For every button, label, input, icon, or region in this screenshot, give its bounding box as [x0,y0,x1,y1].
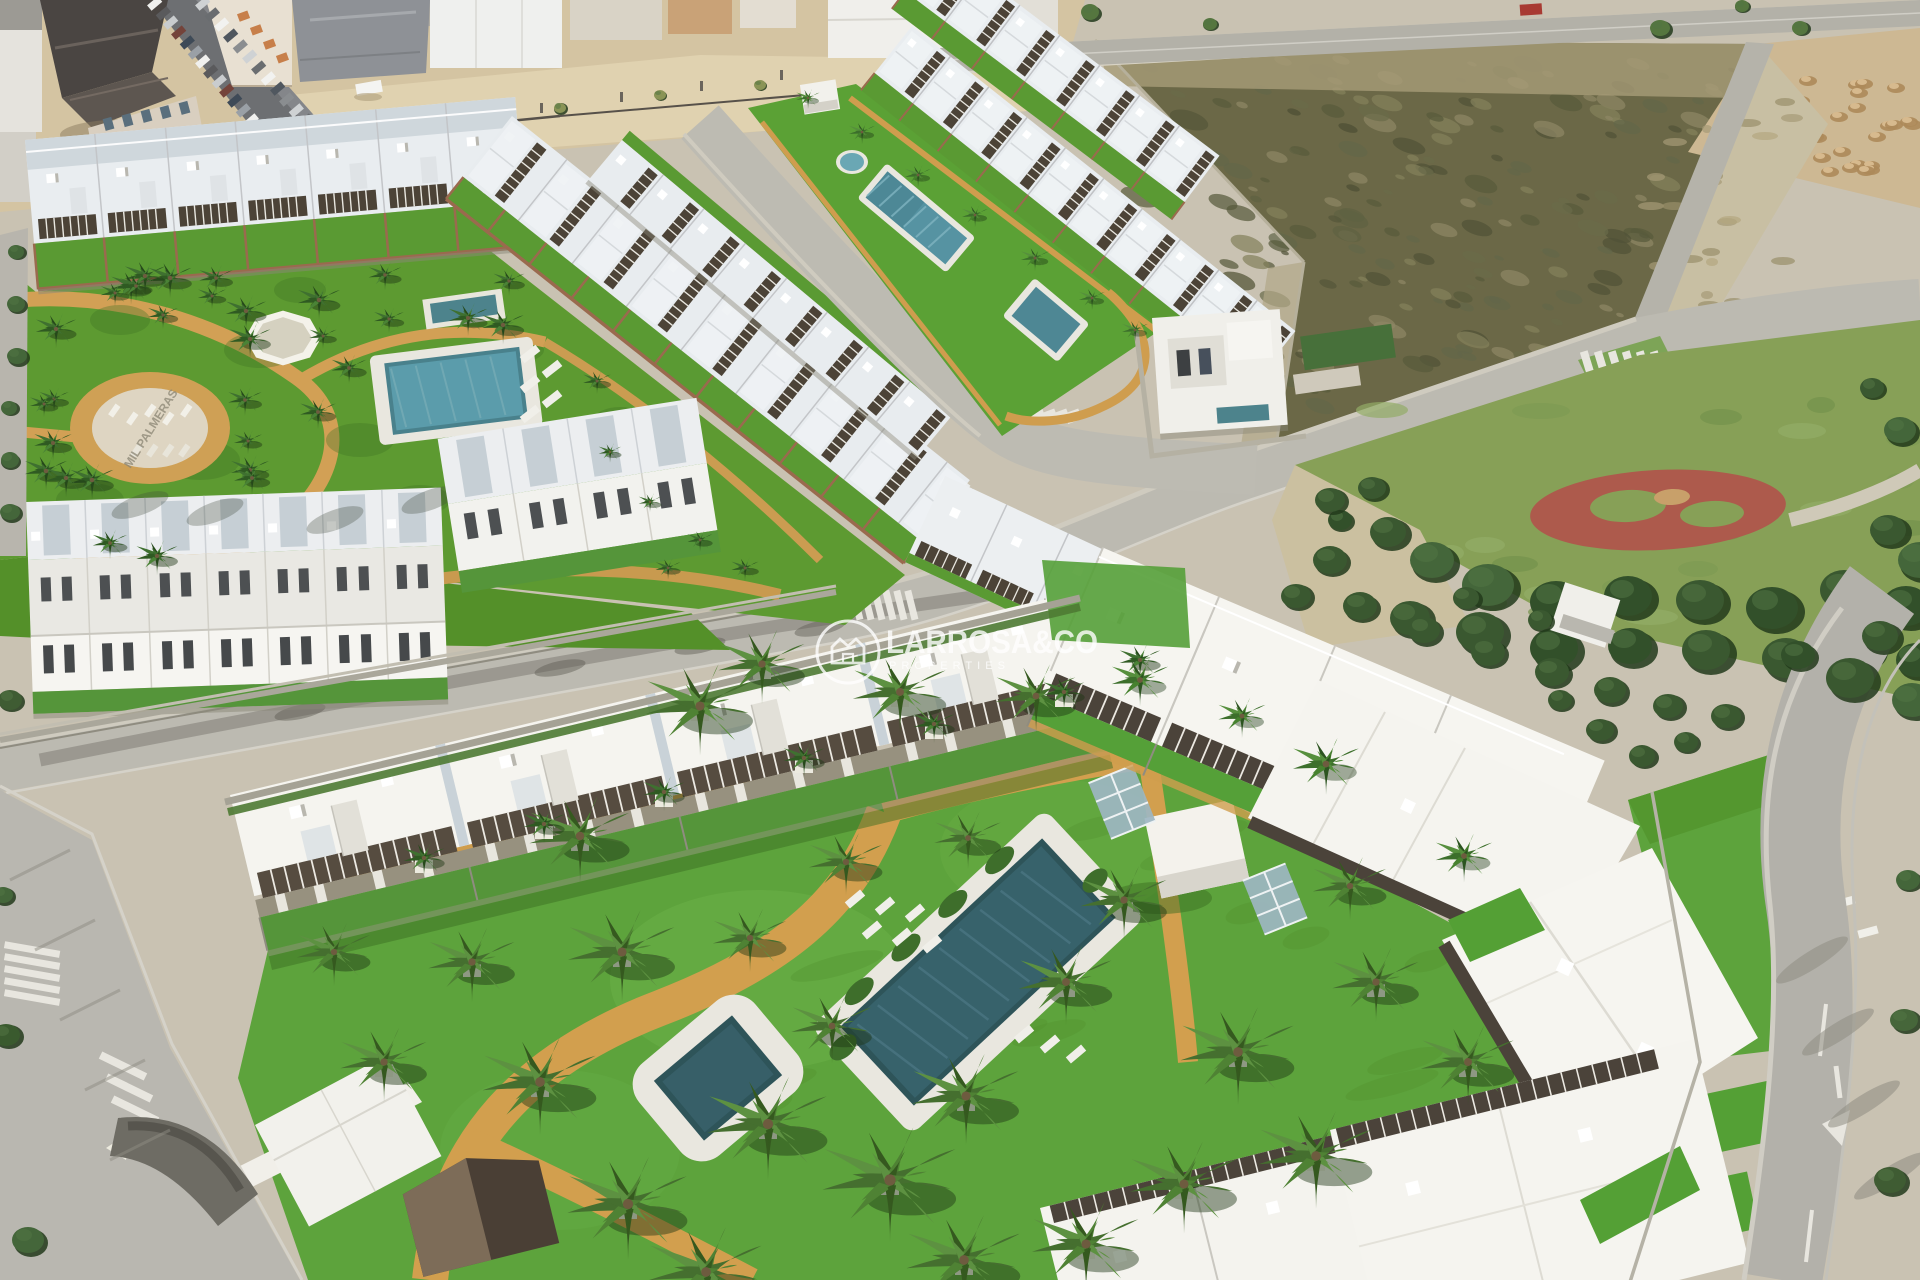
svg-text:PROPERTIES: PROPERTIES [889,660,1010,672]
svg-text:LARROSA&CO: LARROSA&CO [886,624,1098,660]
